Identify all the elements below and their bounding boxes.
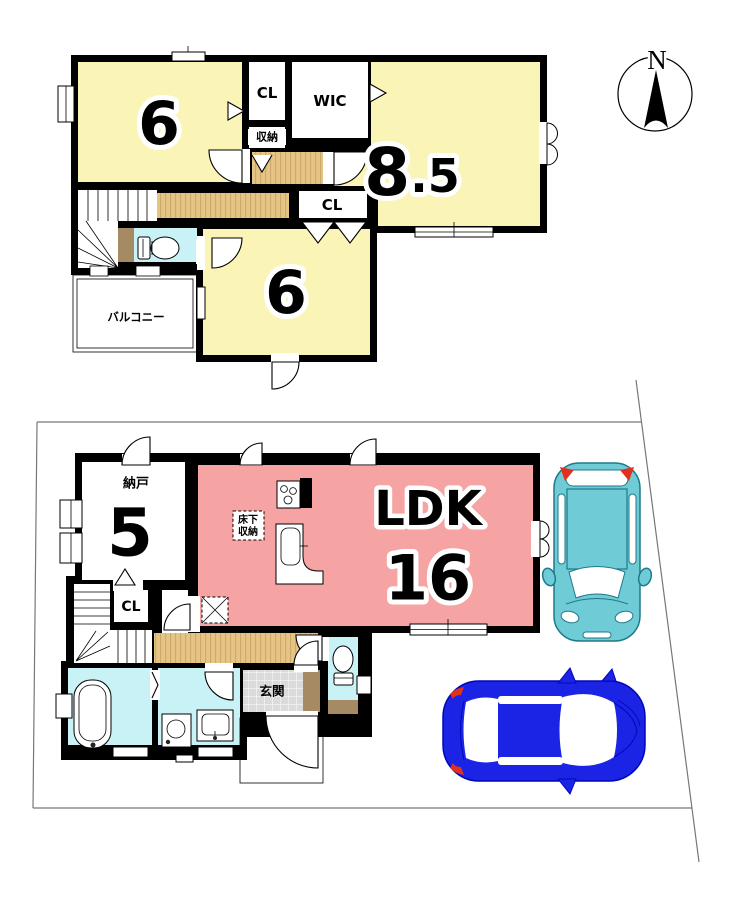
door-opening [205,663,233,672]
underfloor-storage-label: 床下 [238,513,258,526]
underfloor-storage-label: 収納 [238,525,258,538]
kitchen-wall-stub [300,478,312,508]
closet-label: CL [322,196,343,214]
storage-room-label: 納戸 [123,476,149,492]
sink-icon [197,710,233,741]
closet-label: CL [257,84,278,102]
room-size-label: 6 [138,89,180,159]
room-size-label: 5 [107,495,153,572]
blue-car-icon [443,668,645,794]
hall-1f [154,633,318,663]
entrance-door-arc-icon [266,716,318,768]
compass-north-label: N [647,45,667,75]
floor-2f-plan: 6 CL 収納 WIC 8.5 CL 6 バルコニー [58,46,558,389]
door-arc-icon [240,443,262,465]
closet-label: CL [121,599,140,615]
balcony-opening [136,266,160,276]
washing-machine-icon [162,714,191,747]
window-icon [197,287,205,319]
toilet-icon [333,646,353,685]
casement-window-icon [531,521,549,557]
ldk-label: LDK [374,481,483,537]
balcony-label: バルコニー [107,310,164,324]
casement-window-icon [539,122,558,165]
window-icon [56,694,72,718]
room-1f-ldk [198,465,533,626]
door-opening [323,152,334,184]
window-icon [198,747,233,757]
compass: N [618,45,692,131]
teal-car-icon [541,463,654,641]
window-icon [172,52,205,61]
floor-plan-page: 6 CL 収納 WIC 8.5 CL 6 バルコニー [0,0,740,903]
toilet-1f-step [328,700,358,714]
floor-hatch-icon [202,597,228,623]
bathtub-icon [74,680,111,748]
window-icon [176,755,193,762]
door-opening [196,240,205,264]
toilet-icon [138,237,179,259]
storage-label: 収納 [248,129,286,145]
svg-text:収納: 収納 [256,130,278,144]
door-arc-icon [122,437,150,465]
door-arc-icon [350,439,376,465]
window-icon [357,676,371,694]
balcony-opening [90,266,108,276]
entrance-label: 玄関 [259,684,284,699]
entrance-step [303,670,320,712]
room-size-label: 6 [265,258,307,328]
floor-plan-drawing: 6 CL 収納 WIC 8.5 CL 6 バルコニー [0,0,740,903]
stove-icon [277,481,300,508]
hall-2f [157,193,289,218]
room-size-label: 16 [385,542,471,615]
door-arc-icon [272,362,299,389]
wic-label: WIC [313,92,346,110]
window-icon [113,747,148,757]
toilet-2f-step [118,228,134,262]
